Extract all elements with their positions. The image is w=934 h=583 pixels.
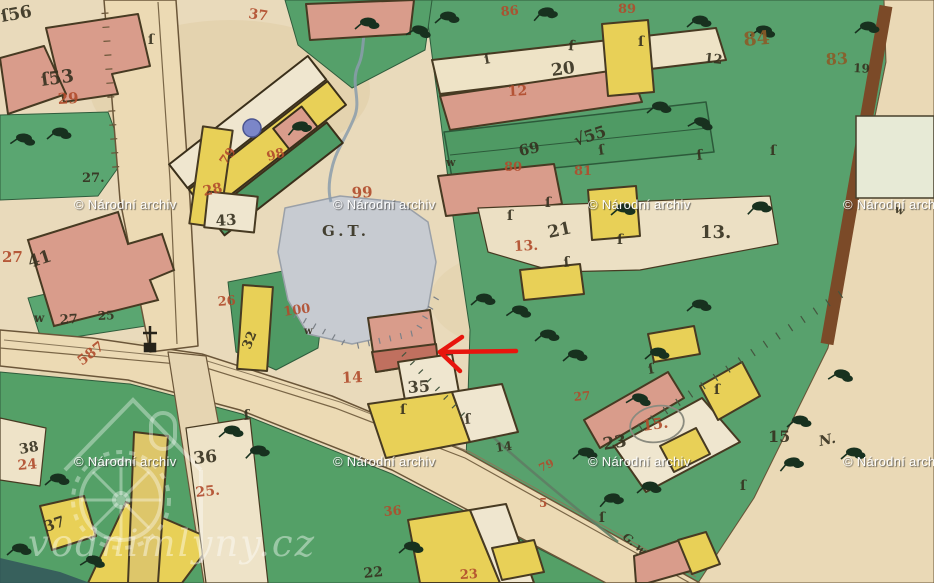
map-label: 15 [768, 427, 790, 446]
map-label: w [33, 311, 45, 325]
map-label: 29 [57, 89, 79, 108]
map-viewport[interactable]: ſ56ſ5327.41w272520121913.21√5569433235G.… [0, 0, 934, 583]
building [602, 20, 654, 96]
map-label: 86 [500, 3, 519, 20]
map-label: G.T. [322, 222, 370, 240]
map-label: 27 [573, 389, 591, 404]
map-label: 25. [195, 483, 221, 501]
map-label: 5 [539, 496, 547, 510]
map-label: 23 [601, 431, 628, 455]
map-label: ſ [638, 34, 645, 50]
map-label: 84 [743, 27, 771, 51]
field-pale [856, 116, 934, 198]
map-label: 23 [459, 567, 478, 583]
hatch-tick [368, 340, 369, 346]
map-label: ſ [599, 510, 606, 526]
map-label: ſ [545, 195, 552, 211]
map-label: 19 [853, 61, 870, 76]
meadow-left-top [0, 112, 125, 200]
map-label: ſ56 [0, 2, 33, 27]
map-label: 80 [504, 160, 522, 175]
map-label: 43 [215, 211, 237, 230]
map-label: 83 [825, 49, 848, 69]
map-label: 24 [17, 456, 38, 474]
annotation-arrow-stroke [440, 351, 516, 352]
map-label: 13. [513, 238, 538, 255]
map-label: 12 [704, 51, 724, 68]
map-label: 37 [247, 6, 269, 25]
map-label: w [303, 326, 313, 337]
map-label: 27 [59, 312, 78, 328]
map-label: 22 [363, 564, 384, 582]
map-label: ſ [507, 208, 514, 224]
map-label: ſ [770, 143, 777, 159]
map-label: ſ [148, 32, 155, 48]
map-label: w [445, 156, 456, 169]
map-label: ſ [400, 402, 407, 418]
map-label: 20 [550, 58, 576, 81]
map-label: 36 [383, 503, 402, 520]
building [237, 285, 273, 371]
map-label: 12 [507, 83, 527, 100]
map-label: 99 [351, 183, 373, 202]
map-label: ſ [740, 478, 747, 494]
map-label: 14 [494, 439, 512, 455]
map-label: 14 [341, 368, 363, 387]
map-label: 35 [407, 376, 431, 397]
map-label: 89 [618, 2, 636, 17]
map-label: ſ [714, 382, 721, 398]
map-label: 26 [217, 293, 236, 310]
map-label: 13. [700, 222, 731, 243]
map-label: 38 [18, 439, 40, 458]
well-blue-dot [243, 119, 261, 137]
building [306, 0, 414, 40]
building [520, 264, 584, 300]
map-label: 15. [641, 414, 669, 435]
map-label: 36 [192, 447, 218, 469]
building [492, 540, 544, 580]
historical-cadastral-map: ſ56ſ5327.41w272520121913.21√5569433235G.… [0, 0, 934, 583]
map-label: 81 [574, 164, 592, 179]
map-label: 25 [97, 308, 114, 323]
map-label: 27 [2, 248, 23, 266]
map-label: ſ [617, 232, 624, 248]
map-label: 27. [82, 171, 105, 186]
hatch-tick [357, 343, 358, 349]
